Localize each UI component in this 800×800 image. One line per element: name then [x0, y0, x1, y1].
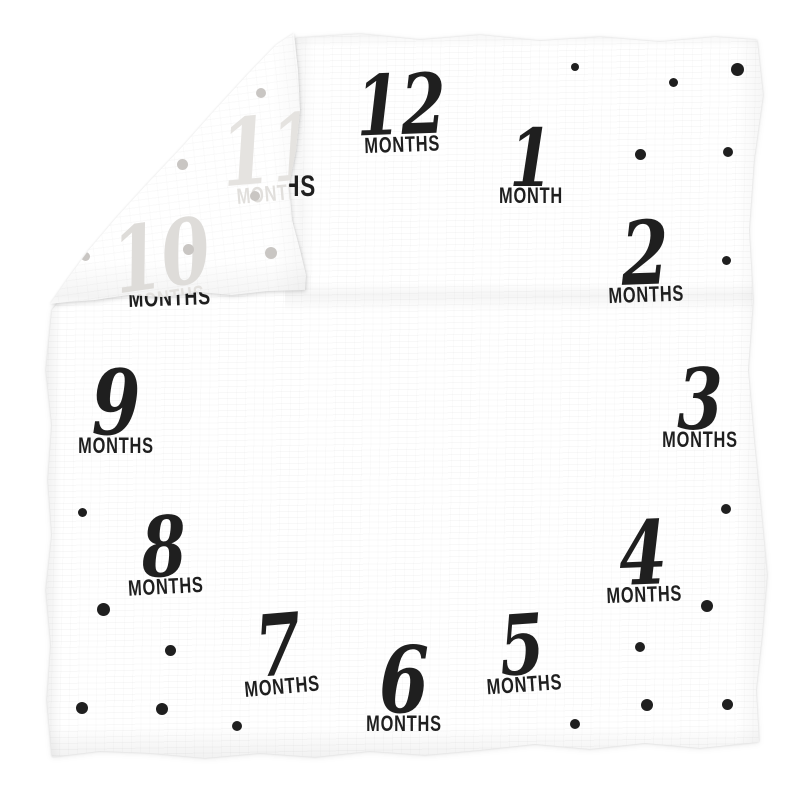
- polka-dot-gray: [256, 88, 266, 98]
- polka-dot-gray: [183, 244, 194, 255]
- polka-dot-gray: [265, 247, 277, 259]
- polka-dot-gray: [81, 252, 90, 261]
- polka-dot-gray: [177, 159, 188, 170]
- polka-dot-gray: [250, 191, 260, 201]
- show-through-milestone-11: 11MONTHS: [192, 98, 350, 211]
- milestone-blanket-photo: 12MONTHS1MONTH2MONTHS3MONTHS4MONTHS5MONT…: [0, 0, 800, 800]
- folded-corner: 11MONTHS10MONTHS: [0, 0, 800, 800]
- show-through-milestone-10: 10MONTHS: [81, 201, 243, 319]
- folded-corner-fabric: 11MONTHS10MONTHS: [0, 0, 800, 800]
